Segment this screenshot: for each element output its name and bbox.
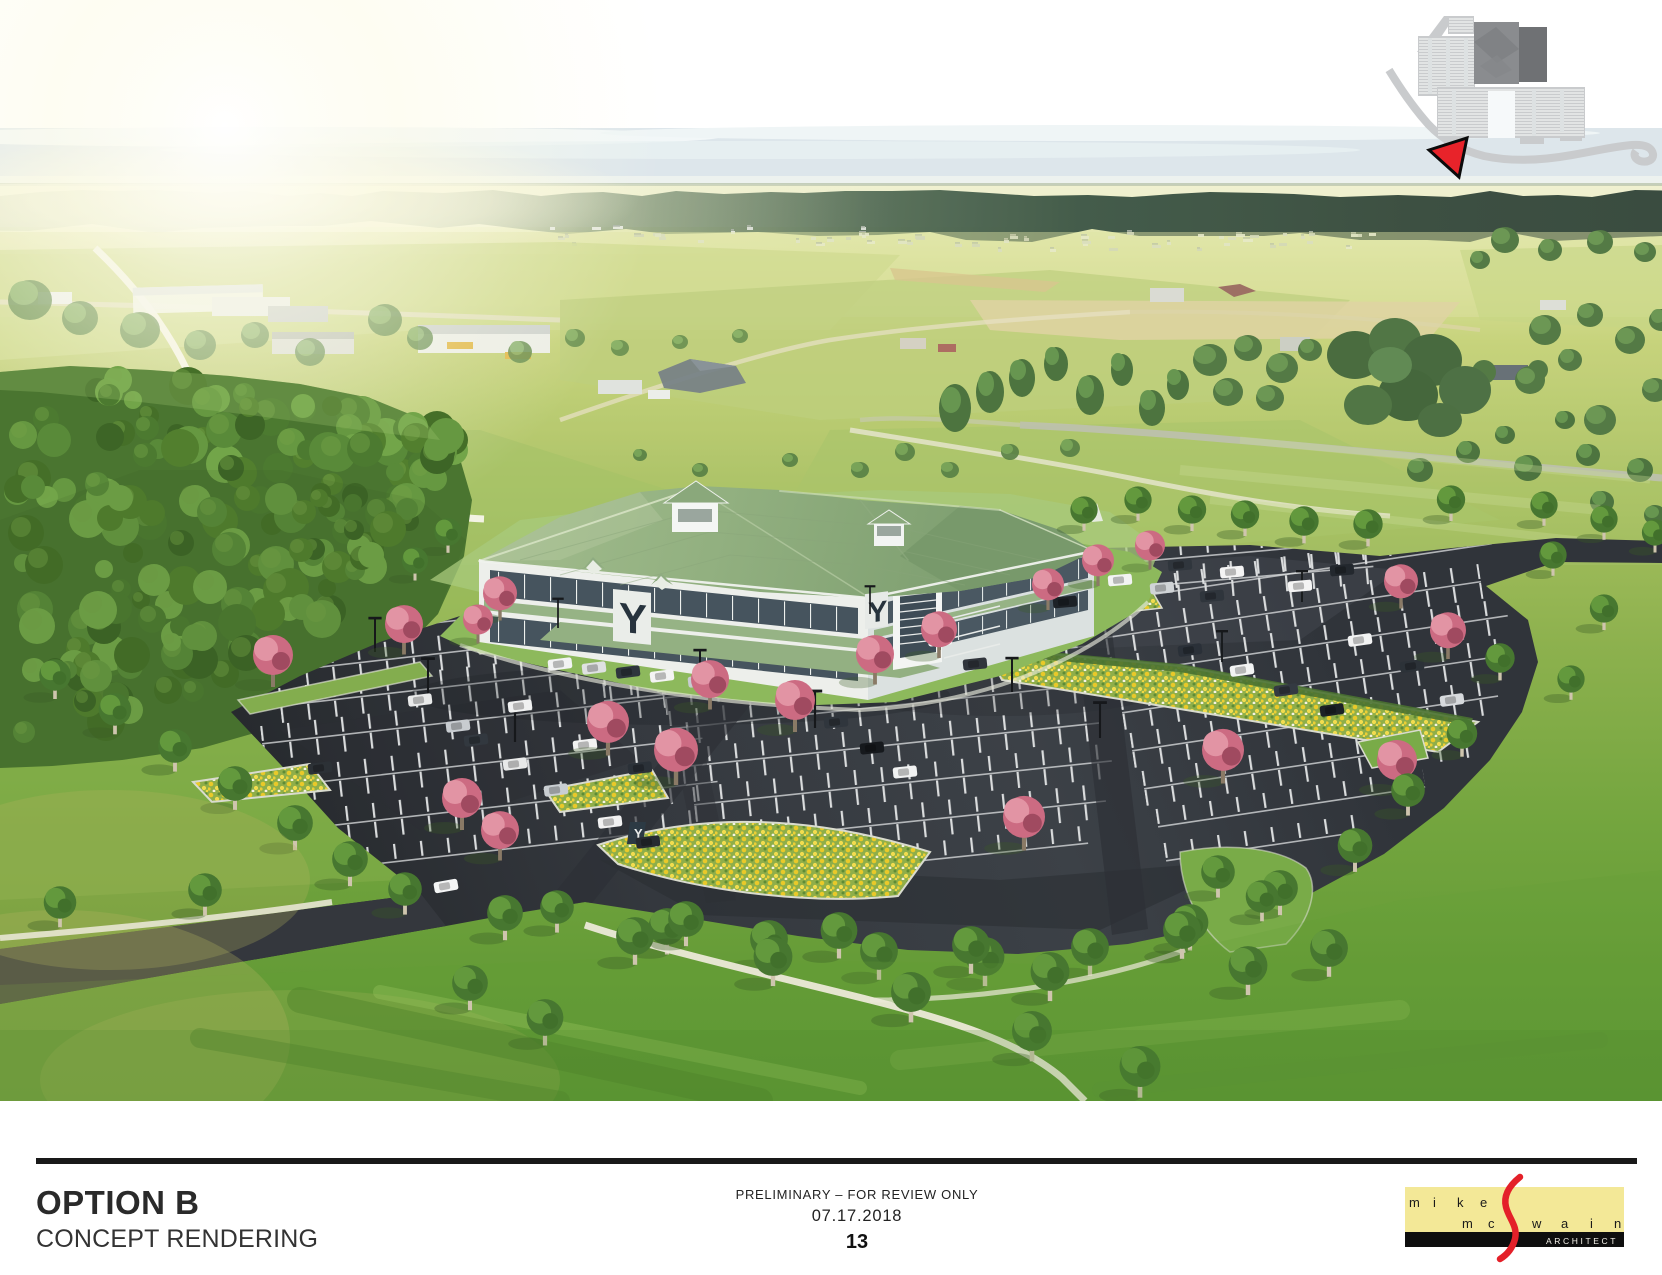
- svg-text:Y: Y: [619, 594, 647, 644]
- svg-text:m: m: [1409, 1195, 1420, 1210]
- svg-text:13: 13: [846, 1231, 868, 1253]
- svg-text:07.17.2018: 07.17.2018: [812, 1207, 903, 1225]
- svg-text:a: a: [1561, 1216, 1569, 1231]
- svg-text:m: m: [1462, 1216, 1473, 1231]
- svg-text:OPTION B: OPTION B: [36, 1184, 200, 1221]
- svg-text:Y: Y: [868, 595, 887, 629]
- svg-text:k: k: [1457, 1195, 1464, 1210]
- svg-text:i: i: [1590, 1216, 1593, 1231]
- svg-text:n: n: [1614, 1216, 1621, 1231]
- svg-text:c: c: [1488, 1216, 1495, 1231]
- svg-text:PRELIMINARY – FOR REVIEW ONLY: PRELIMINARY – FOR REVIEW ONLY: [736, 1187, 979, 1202]
- svg-text:w: w: [1531, 1216, 1542, 1231]
- svg-text:i: i: [1433, 1195, 1436, 1210]
- svg-text:CONCEPT RENDERING: CONCEPT RENDERING: [36, 1225, 318, 1253]
- svg-text:ARCHITECT: ARCHITECT: [1546, 1236, 1618, 1246]
- svg-text:e: e: [1480, 1195, 1487, 1210]
